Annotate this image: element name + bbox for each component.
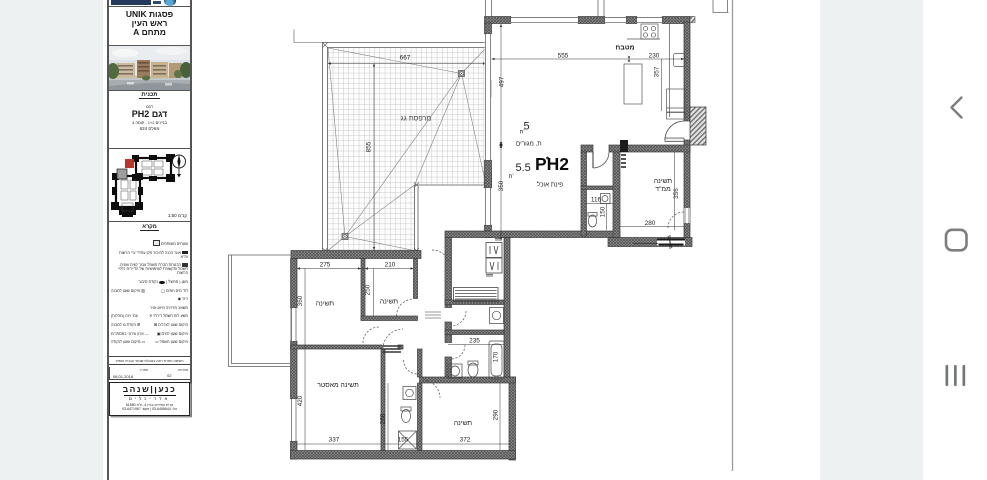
svg-text:372: 372 [460, 437, 471, 444]
svg-text:356: 356 [673, 188, 680, 199]
svg-text:5.5: 5.5 [516, 162, 531, 174]
svg-text:170: 170 [493, 351, 500, 362]
svg-text:תשינה: תשינה [316, 301, 335, 308]
svg-text:350: 350 [498, 180, 505, 191]
svg-text:מטבח: מטבח [615, 45, 634, 52]
svg-text:155: 155 [398, 437, 409, 444]
svg-text:357: 357 [654, 66, 661, 77]
svg-text:290: 290 [493, 409, 500, 420]
svg-text:תשינה מאסטר: תשינה מאסטר [317, 382, 359, 389]
svg-text:ת. מגורים: ת. מגורים [516, 141, 542, 148]
svg-text:667: 667 [400, 55, 411, 62]
svg-text:855: 855 [366, 141, 373, 152]
svg-text:280: 280 [645, 220, 656, 227]
svg-text:360: 360 [297, 295, 304, 306]
svg-text:פינת אוכל: פינת אוכל [537, 181, 563, 189]
svg-text:ממ"ד: ממ"ד [655, 186, 671, 193]
svg-text:מרפסת גג: מרפסת גג [401, 114, 432, 123]
svg-text:235: 235 [469, 338, 480, 345]
svg-text:555: 555 [558, 53, 569, 60]
svg-text:תשינה: תשינה [654, 178, 673, 185]
svg-text:420: 420 [297, 395, 304, 406]
svg-text:ח': ח' [520, 130, 525, 136]
svg-text:PH2: PH2 [535, 154, 569, 174]
svg-text:210: 210 [385, 262, 396, 269]
svg-text:תשינה: תשינה [380, 299, 399, 306]
svg-text:116: 116 [591, 197, 602, 204]
svg-text:230: 230 [649, 53, 660, 60]
svg-text:497: 497 [499, 76, 506, 87]
svg-text:ח': ח' [509, 174, 514, 180]
svg-text:275: 275 [320, 262, 331, 269]
svg-text:260: 260 [380, 413, 387, 424]
svg-text:תשינה: תשינה [454, 420, 473, 427]
svg-text:150: 150 [600, 206, 607, 217]
svg-text:337: 337 [329, 437, 340, 444]
svg-text:250: 250 [365, 284, 372, 295]
